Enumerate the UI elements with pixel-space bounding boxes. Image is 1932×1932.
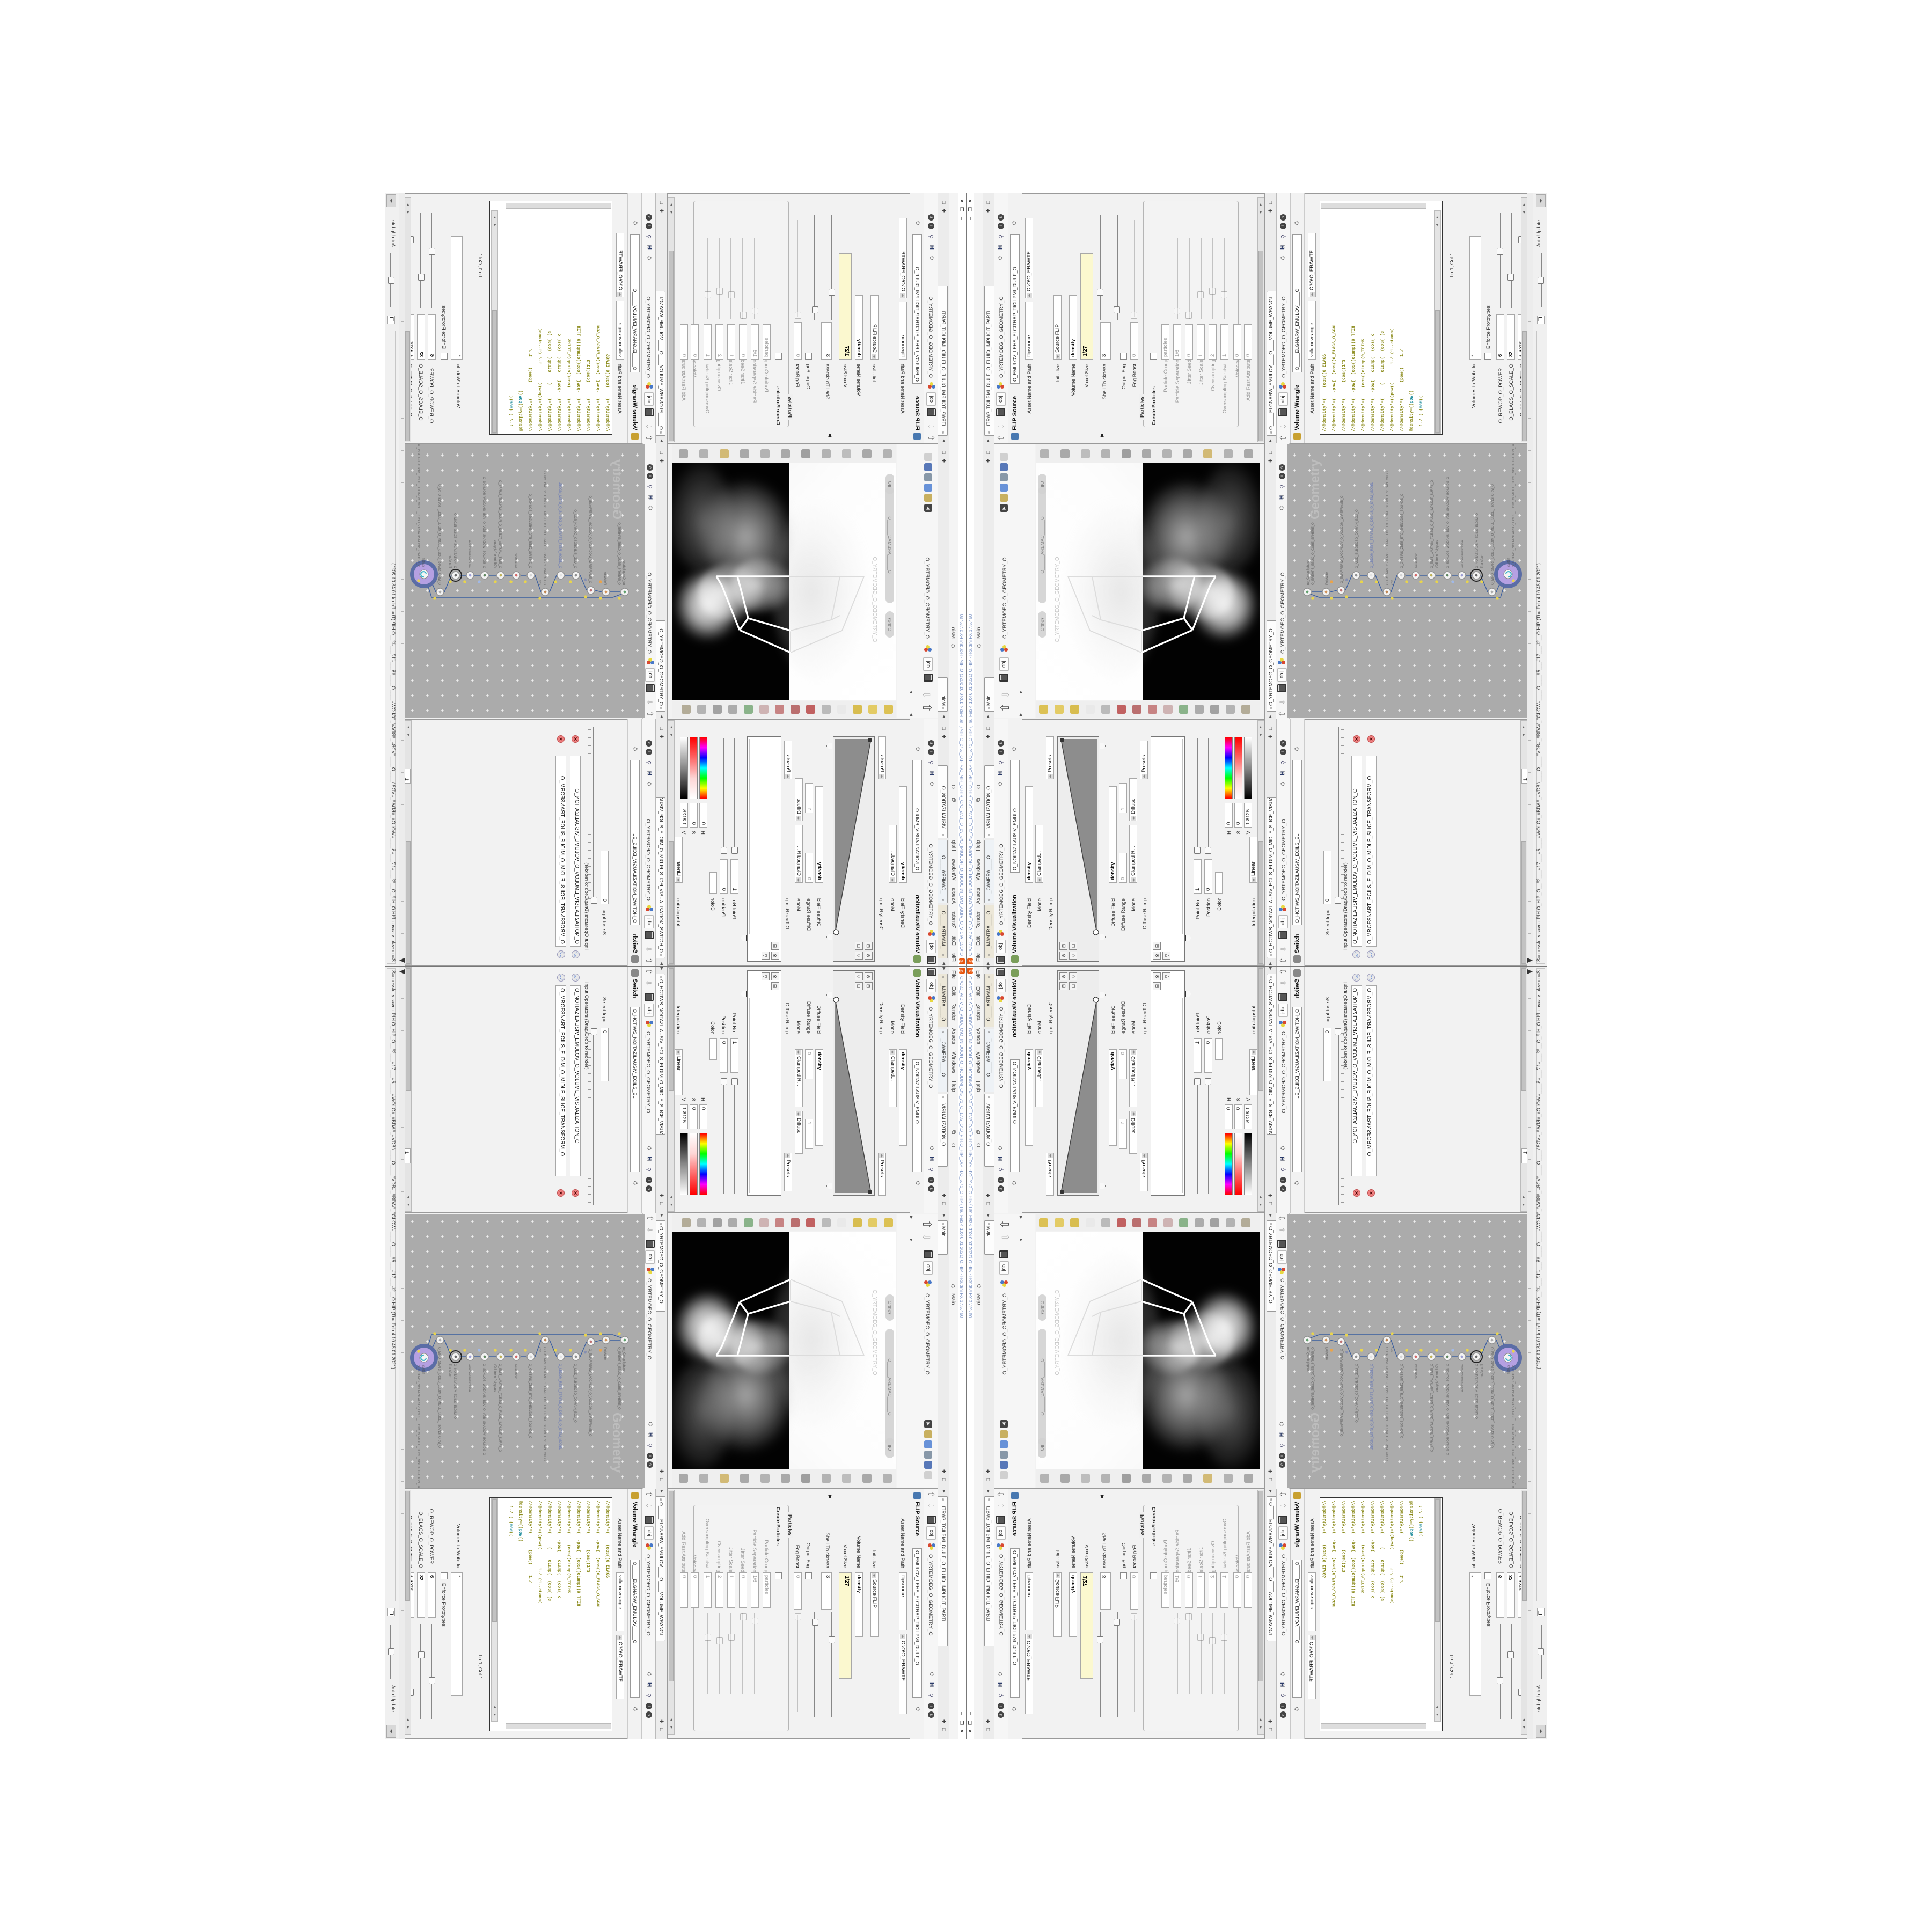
svg-text:sourcefip2: sourcefip2 [1415, 553, 1418, 568]
svg-text:ne_CreepSphere: ne_CreepSphere [1307, 560, 1310, 585]
svg-text:O_MOD_BLBGECSO_DOMAIN_BOX_O: O_MOD_BLBGECSO_DOMAIN_BOX_O [573, 1364, 576, 1423]
svg-text:File: File [1345, 578, 1349, 583]
svg-text:O_EMIT_LAUTRIV_TCEJNI_O_FLUID_: O_EMIT_LAUTRIV_TCEJNI_O_FLUID_IMPLICIT_S… [498, 1364, 501, 1452]
svg-text:O_MROFSNART_ECILS_ELDIM_O_MIDL: O_MROFSNART_ECILS_ELDIM_O_MIDLE_SLICE_TR… [437, 1347, 441, 1448]
svg-text:VDB from Polygons: VDB from Polygons [493, 540, 496, 568]
svg-text:VDB from Polygons: VDB from Polygons [1436, 1364, 1439, 1392]
svg-text:volumevisualization: volumevisualization [467, 540, 471, 568]
svg-text:O_EREHPS_EBUC_O_CUBE_SPHERE_O: O_EREHPS_EBUC_O_CUBE_SPHERE_O [617, 1347, 620, 1410]
svg-text:O_GNITIRS_ZBES_ETC_SHELVDGE_BO: O_GNITIRS_ZBES_ETC_SHELVDGE_BOUNDS_O [1401, 1364, 1404, 1439]
svg-text:O_EMIT_LAUTRIV_TCEJNI_O_FLUID_: O_EMIT_LAUTRIV_TCEJNI_O_FLUID_IMPLICIT_S… [498, 480, 501, 568]
svg-text:File: File [583, 1349, 587, 1354]
svg-text:O_EREHPS_EBUC_O_CUBE_SPHERE_O: O_EREHPS_EBUC_O_CUBE_SPHERE_O [1312, 1347, 1315, 1410]
svg-text:Geometry: Geometry [1308, 1413, 1322, 1473]
svg-text:O_SDNUOB_WODAHS_BDV_O_VDB_SHAD: O_SDNUOB_WODAHS_BDV_O_VDB_SHADOW_BOUNDS_… [1447, 1364, 1450, 1455]
svg-text:cgb: cgb [538, 1347, 541, 1352]
svg-text:cgb: cgb [1391, 1347, 1394, 1352]
svg-text:Transform: Transform [1481, 1364, 1484, 1378]
svg-text:O_MOD_BLBGECSO_DOMAIN_BOX_O: O_MOD_BLBGECSO_DOMAIN_BOX_O [573, 509, 576, 568]
svg-text:O_HCTIWS_NOITAZILAUSIV_ECILS_E: O_HCTIWS_NOITAZILAUSIV_ECILS_ELDIM_O_MID… [1512, 444, 1516, 567]
svg-text:PolyWire: PolyWire [603, 1347, 606, 1360]
svg-text:Switch: Switch [1507, 1365, 1511, 1374]
svg-text:O_MROFSNART_ECILS_ELDIM_O_MIDL: O_MROFSNART_ECILS_ELDIM_O_MIDLE_SLICE_TR… [1491, 1347, 1495, 1448]
svg-text:Switch: Switch [421, 558, 425, 567]
svg-text:Switch: Switch [421, 1365, 425, 1374]
svg-text:O_SDNUOB_WODAHS_BDV_O_VDB_SHAD: O_SDNUOB_WODAHS_BDV_O_VDB_SHADOW_BOUNDS_… [482, 477, 485, 568]
svg-text:O_MOD_BLBGECSO_DOMAIN_BOX_O: O_MOD_BLBGECSO_DOMAIN_BOX_O [1356, 1364, 1359, 1423]
svg-text:O_SDNUOB_WODAHS_BDV_O_VDB_SHAD: O_SDNUOB_WODAHS_BDV_O_VDB_SHADOW_BOUNDS_… [1447, 477, 1450, 568]
svg-text:O_HCTIWS_YRTEMOEG_LANRETXE_EXT: O_HCTIWS_YRTEMOEG_LANRETXE_EXTERNAL_GEOM… [543, 1347, 546, 1461]
svg-text:sourcefip2: sourcefip2 [1415, 1364, 1418, 1379]
svg-text:PolyWire: PolyWire [1326, 572, 1329, 585]
svg-text:VDB from Polygons: VDB from Polygons [493, 1364, 496, 1392]
svg-text:Transform: Transform [1481, 554, 1484, 568]
svg-text:O_GNITIRS_ZBES_ETC_SHELVDGE_BO: O_GNITIRS_ZBES_ETC_SHELVDGE_BOUNDS_O [1401, 493, 1404, 568]
svg-text:O_HCTIWS_YRTEMOEG_LANRETXE_EXT: O_HCTIWS_YRTEMOEG_LANRETXE_EXTERNAL_GEOM… [1386, 1347, 1389, 1461]
svg-text:O_EMARFERIW_MOCALOV_O_VOLCOM_W: O_EMARFERIW_MOCALOV_O_VOLCOM_WIREFRAME_O [1341, 495, 1344, 583]
svg-text:O_LEDOM_RETS_TERPLS_O_DEVILS_O: O_LEDOM_RETS_TERPLS_O_DEVILS_O_STEM_MODE… [1371, 1364, 1374, 1450]
svg-text:Geometry: Geometry [610, 459, 624, 519]
svg-text:volumevisualization: volumevisualization [1461, 1364, 1465, 1392]
svg-text:cgb: cgb [538, 580, 541, 585]
svg-text:PolyWire: PolyWire [603, 572, 606, 585]
svg-text:O_GNITIRS_ZBES_ETC_SHELVDGE_BO: O_GNITIRS_ZBES_ETC_SHELVDGE_BOUNDS_O [528, 493, 531, 568]
svg-text:O_NOITAZILAUSIV_ECILS_ELDIM_O: O_NOITAZILAUSIV_ECILS_ELDIM_O [1476, 1364, 1479, 1419]
svg-text:O_HCTIWS_NOITAZILAUSIV_ECILS_E: O_HCTIWS_NOITAZILAUSIV_ECILS_ELDIM_O_MID… [1512, 1365, 1516, 1488]
svg-text:O_NOITAZILAUSIV_ECILS_ELDIM_O: O_NOITAZILAUSIV_ECILS_ELDIM_O [453, 513, 456, 568]
svg-text:O_HCTIWS_YRTEMOEG_LANRETXE_EXT: O_HCTIWS_YRTEMOEG_LANRETXE_EXTERNAL_GEOM… [543, 471, 546, 585]
svg-text:O_HCTIWS_NOITAZILAUSIV_ECILS_E: O_HCTIWS_NOITAZILAUSIV_ECILS_ELDIM_O_MID… [416, 444, 420, 567]
svg-text:volumevisualization: volumevisualization [1461, 540, 1465, 568]
svg-text:Transform: Transform [448, 554, 451, 568]
svg-text:O_MROFSNART_ECILS_ELDIM_O_MIDL: O_MROFSNART_ECILS_ELDIM_O_MIDLE_SLICE_TR… [1491, 484, 1495, 585]
svg-text:O_EMIT_LAUTRIV_TCEJNI_O_FLUID_: O_EMIT_LAUTRIV_TCEJNI_O_FLUID_IMPLICIT_S… [1431, 480, 1434, 568]
svg-text:File: File [1345, 1349, 1349, 1354]
svg-text:Geometry: Geometry [1308, 459, 1322, 519]
svg-text:O_EMARFERIW_MOCALOV_O_VOLCOM_W: O_EMARFERIW_MOCALOV_O_VOLCOM_WIREFRAME_O [588, 1349, 591, 1437]
svg-text:ne_CreepSphere: ne_CreepSphere [622, 1347, 625, 1372]
svg-text:PolyWire: PolyWire [1326, 1347, 1329, 1360]
svg-text:O_HCTIWS_YRTEMOEG_LANRETXE_EXT: O_HCTIWS_YRTEMOEG_LANRETXE_EXTERNAL_GEOM… [1386, 471, 1389, 585]
svg-text:ne_CreepSphere: ne_CreepSphere [1307, 1347, 1310, 1372]
svg-text:sourcefip2: sourcefip2 [514, 553, 517, 568]
svg-text:O_GNITIRS_ZBES_ETC_SHELVDGE_BO: O_GNITIRS_ZBES_ETC_SHELVDGE_BOUNDS_O [528, 1364, 531, 1439]
svg-text:O_MOD_BLBGECSO_DOMAIN_BOX_O: O_MOD_BLBGECSO_DOMAIN_BOX_O [1356, 509, 1359, 568]
svg-text:O_EMIT_LAUTRIV_TCEJNI_O_FLUID_: O_EMIT_LAUTRIV_TCEJNI_O_FLUID_IMPLICIT_S… [1431, 1364, 1434, 1452]
svg-text:volumevisualization: volumevisualization [467, 1364, 471, 1392]
svg-text:File: File [583, 578, 587, 583]
svg-text:cgb: cgb [1391, 580, 1394, 585]
svg-text:O_LEDOM_RETS_TERPLS_O_DEVILS_O: O_LEDOM_RETS_TERPLS_O_DEVILS_O_STEM_MODE… [558, 482, 561, 568]
svg-text:O_HCTIWS_NOITAZILAUSIV_ECILS_E: O_HCTIWS_NOITAZILAUSIV_ECILS_ELDIM_O_MID… [416, 1365, 420, 1488]
svg-text:O_NOITAZILAUSIV_ECILS_ELDIM_O: O_NOITAZILAUSIV_ECILS_ELDIM_O [1476, 513, 1479, 568]
svg-text:Switch: Switch [1507, 558, 1511, 567]
svg-text:O_NOITAZILAUSIV_ECILS_ELDIM_O: O_NOITAZILAUSIV_ECILS_ELDIM_O [453, 1364, 456, 1419]
svg-text:O_SDNUOB_WODAHS_BDV_O_VDB_SHAD: O_SDNUOB_WODAHS_BDV_O_VDB_SHADOW_BOUNDS_… [482, 1364, 485, 1455]
svg-text:VDB from Polygons: VDB from Polygons [1436, 540, 1439, 568]
svg-text:O_EMARFERIW_MOCALOV_O_VOLCOM_W: O_EMARFERIW_MOCALOV_O_VOLCOM_WIREFRAME_O [588, 495, 591, 583]
svg-text:ne_CreepSphere: ne_CreepSphere [622, 560, 625, 585]
svg-text:O_EMARFERIW_MOCALOV_O_VOLCOM_W: O_EMARFERIW_MOCALOV_O_VOLCOM_WIREFRAME_O [1341, 1349, 1344, 1437]
svg-text:O_EREHPS_EBUC_O_CUBE_SPHERE_O: O_EREHPS_EBUC_O_CUBE_SPHERE_O [1312, 522, 1315, 585]
svg-text:O_LEDOM_RETS_TERPLS_O_DEVILS_O: O_LEDOM_RETS_TERPLS_O_DEVILS_O_STEM_MODE… [1371, 482, 1374, 568]
svg-text:O_LEDOM_RETS_TERPLS_O_DEVILS_O: O_LEDOM_RETS_TERPLS_O_DEVILS_O_STEM_MODE… [558, 1364, 561, 1450]
svg-text:Geometry: Geometry [610, 1413, 624, 1473]
svg-text:sourcefip2: sourcefip2 [514, 1364, 517, 1379]
svg-text:O_EREHPS_EBUC_O_CUBE_SPHERE_O: O_EREHPS_EBUC_O_CUBE_SPHERE_O [617, 522, 620, 585]
svg-text:Transform: Transform [448, 1364, 451, 1378]
svg-text:O_MROFSNART_ECILS_ELDIM_O_MIDL: O_MROFSNART_ECILS_ELDIM_O_MIDLE_SLICE_TR… [437, 484, 441, 585]
